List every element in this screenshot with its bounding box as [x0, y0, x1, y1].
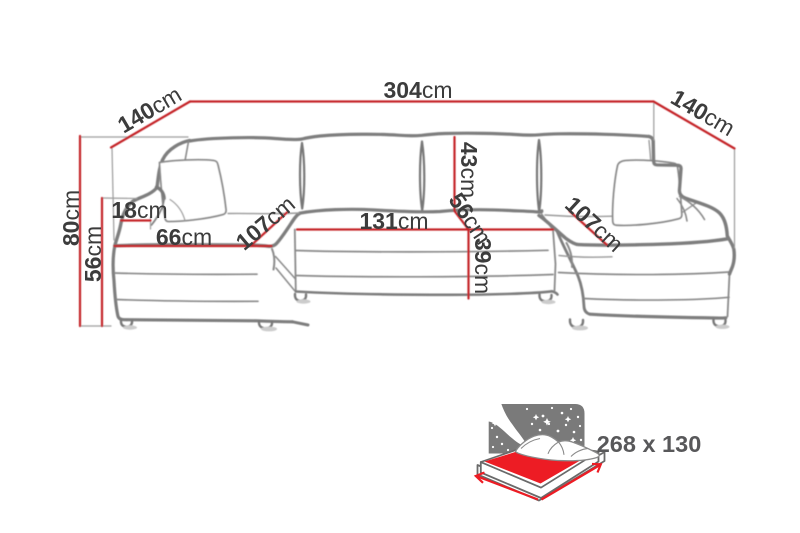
svg-text:39cm: 39cm [470, 238, 496, 294]
svg-text:66cm: 66cm [156, 224, 212, 250]
svg-text:304cm: 304cm [383, 77, 452, 103]
svg-text:131cm: 131cm [359, 208, 428, 234]
svg-text:43cm: 43cm [456, 142, 482, 198]
svg-text:18cm: 18cm [111, 197, 167, 223]
svg-text:56cm: 56cm [80, 226, 106, 282]
svg-text:268 x 130: 268 x 130 [597, 431, 702, 457]
